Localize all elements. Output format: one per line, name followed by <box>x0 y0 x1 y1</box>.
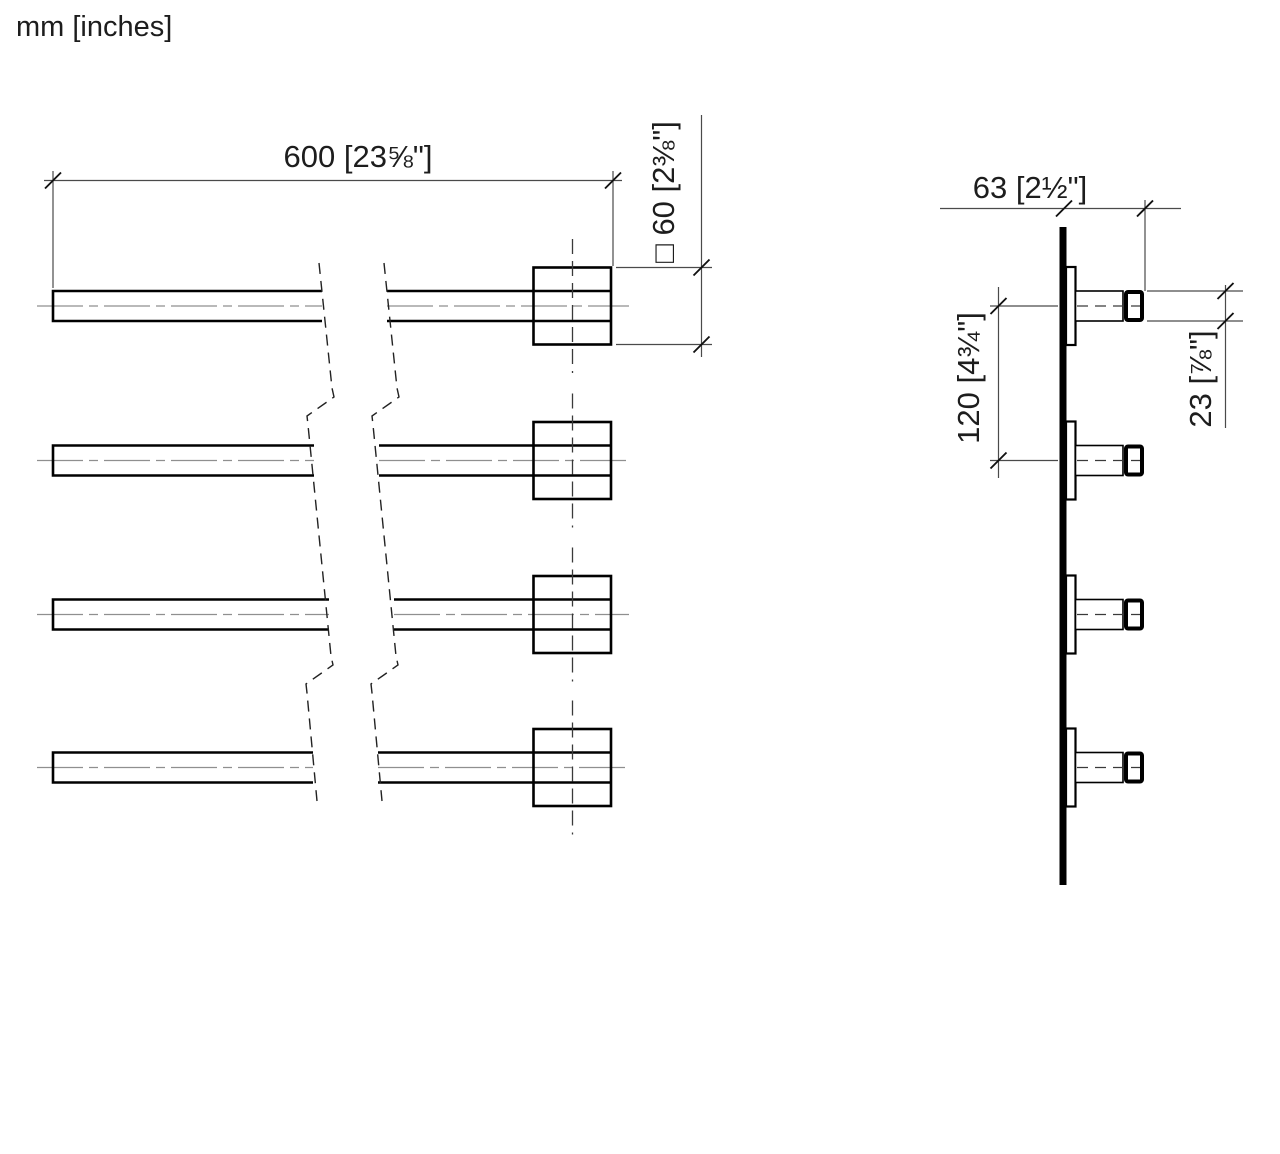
dimension-length-600 <box>44 171 622 288</box>
wall-plate-side <box>1066 576 1076 654</box>
technical-drawing-page: mm [inches] 600 [23⅝"] □ 60 [2⅜"] 63 [2½… <box>0 0 1280 1154</box>
wall-plate-side <box>1066 729 1076 807</box>
bar-side-profile <box>1066 267 1142 345</box>
dimension-label-bar-height: 23 [⅞"] <box>1183 279 1219 479</box>
bar-side-profile <box>1066 576 1142 654</box>
bar-side-profile <box>1066 422 1142 500</box>
break-line-right <box>371 263 399 801</box>
towel-bar-row <box>37 239 629 373</box>
wall-plate-side <box>1066 267 1076 345</box>
dimension-label-profile: □ 60 [2⅜"] <box>646 82 682 302</box>
front-view <box>37 115 712 835</box>
wall-plate-side <box>1066 422 1076 500</box>
dimension-label-length: 600 [23⅝"] <box>208 139 508 175</box>
bar-side-profile <box>1066 729 1142 807</box>
dimension-label-projection: 63 [2½"] <box>910 170 1150 206</box>
dimension-spacing-120 <box>990 287 1058 478</box>
towel-bar-row <box>37 701 629 835</box>
towel-bar-row <box>37 548 629 682</box>
break-line-left <box>306 263 334 801</box>
units-label: mm [inches] <box>16 10 172 44</box>
dimension-label-spacing: 120 [4¾"] <box>951 268 987 488</box>
towel-bar-row <box>37 394 629 528</box>
